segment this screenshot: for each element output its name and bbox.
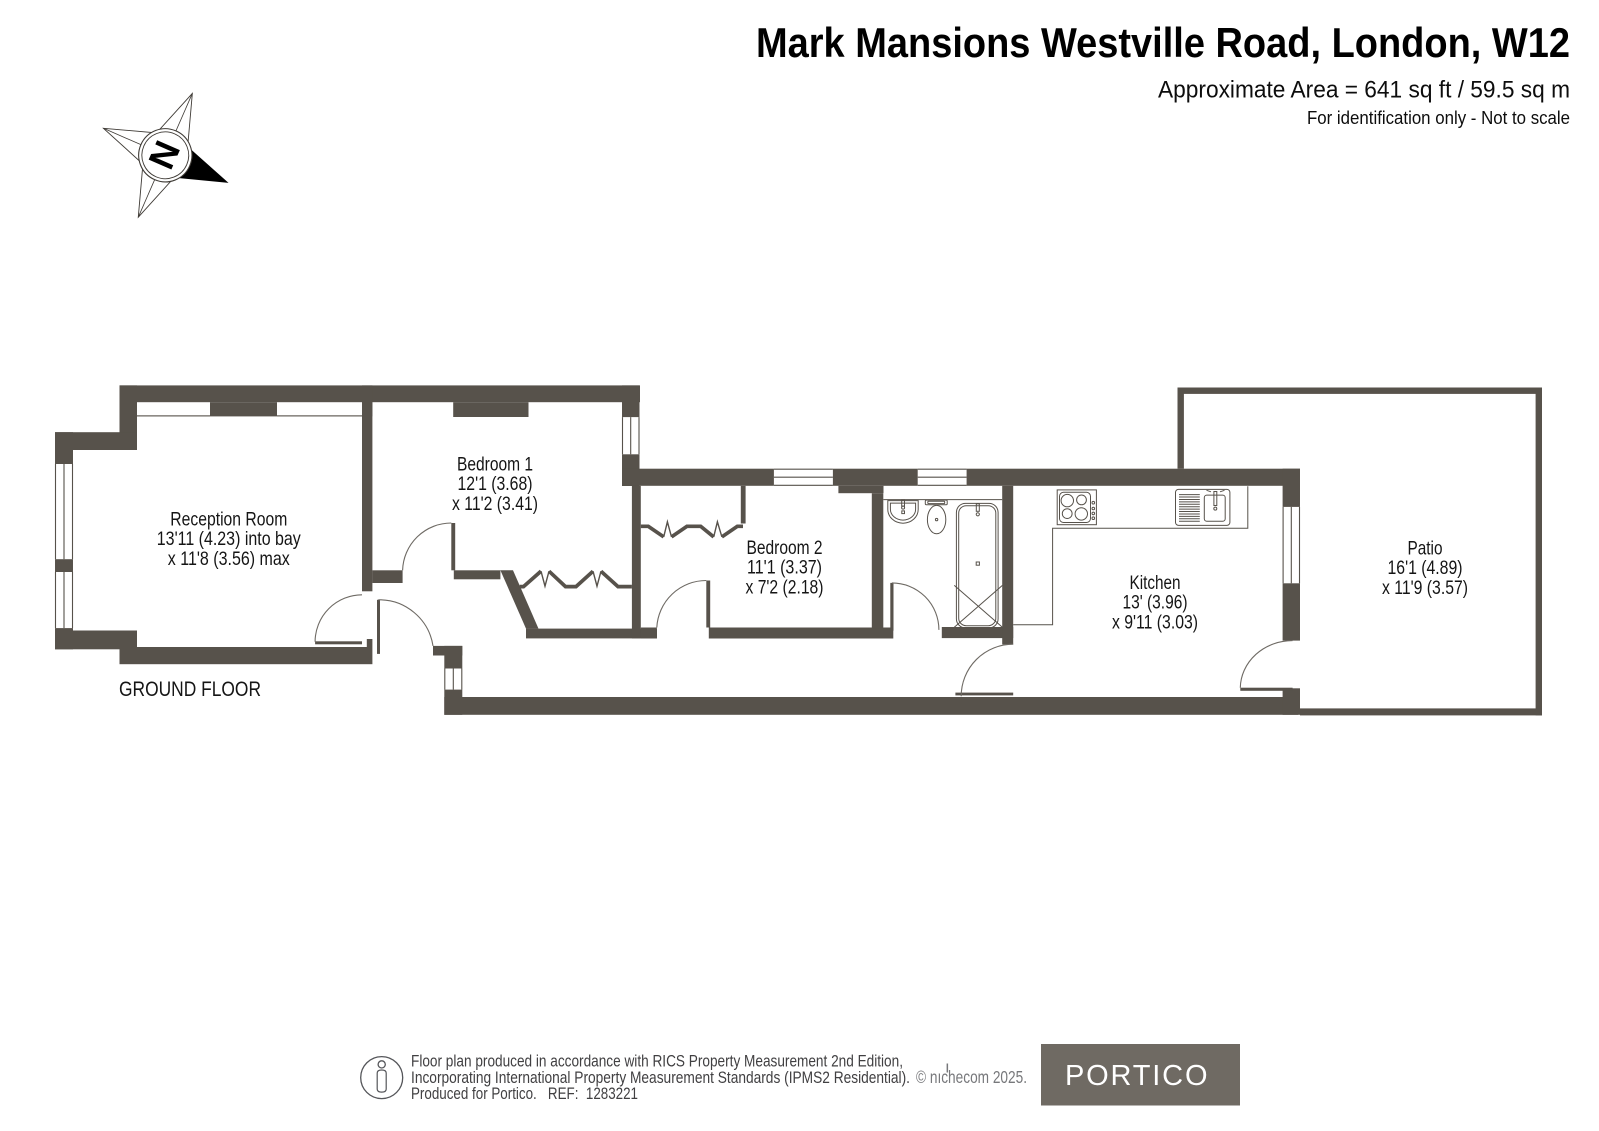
svg-text:Bedroom 1: Bedroom 1: [457, 454, 533, 476]
svg-text:Patio: Patio: [1408, 538, 1443, 560]
svg-text:Reception Room: Reception Room: [170, 509, 287, 531]
svg-text:Kitchen: Kitchen: [1130, 572, 1181, 594]
svg-text:Incorporating International Pr: Incorporating International Property Mea…: [411, 1069, 910, 1087]
svg-text:11'1 (3.37): 11'1 (3.37): [747, 557, 822, 579]
svg-text:Bedroom 2: Bedroom 2: [747, 537, 823, 559]
svg-text:Produced for Portico. REF:: Produced for Portico. REF: 1283221: [411, 1085, 638, 1103]
svg-text:x 11'9 (3.57): x 11'9 (3.57): [1382, 577, 1468, 599]
svg-text:Mark Mansions Westville Road,: Mark Mansions Westville Road, London, W1…: [756, 19, 1570, 66]
svg-text:x 11'2 (3.41): x 11'2 (3.41): [452, 493, 538, 515]
svg-text:x 11'8 (3.56) max: x 11'8 (3.56) max: [168, 548, 290, 570]
svg-text:16'1 (4.89): 16'1 (4.89): [1388, 557, 1463, 579]
svg-text:x 9'11 (3.03): x 9'11 (3.03): [1112, 611, 1198, 633]
svg-text:For identification only - Not: For identification only - Not to scale: [1307, 107, 1570, 128]
svg-text:Approximate Area = 641 sq ft /: Approximate Area = 641 sq ft / 59.5 sq m: [1158, 77, 1570, 104]
svg-text:PORTICO: PORTICO: [1065, 1060, 1216, 1092]
svg-text:13' (3.96): 13' (3.96): [1123, 592, 1188, 614]
svg-text:Floor plan produced in accorda: Floor plan produced in accordance with R…: [411, 1053, 903, 1071]
svg-text:© nıchecom 2025.: © nıchecom 2025.: [916, 1067, 1027, 1087]
svg-text:12'1 (3.68): 12'1 (3.68): [458, 473, 533, 495]
svg-text:GROUND FLOOR: GROUND FLOOR: [119, 677, 261, 701]
svg-text:x 7'2 (2.18): x 7'2 (2.18): [746, 576, 824, 598]
svg-text:13'11 (4.23) into bay: 13'11 (4.23) into bay: [157, 528, 301, 550]
